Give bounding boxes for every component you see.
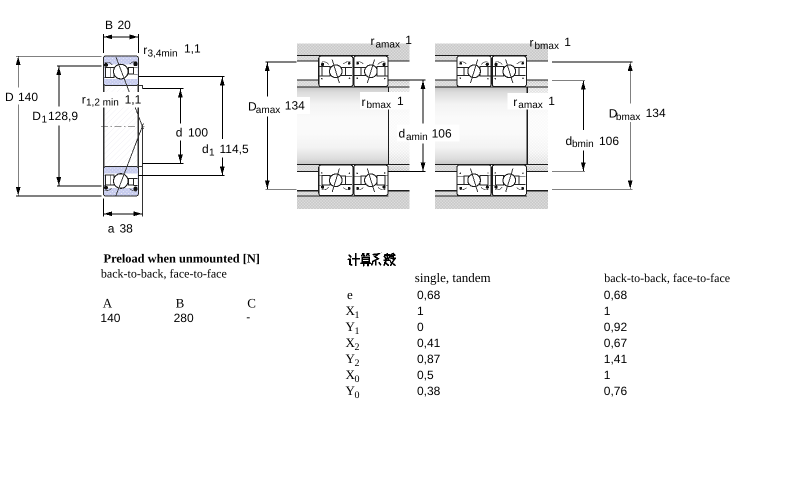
svg-text:140: 140 — [100, 311, 120, 325]
svg-text:134: 134 — [646, 106, 666, 120]
svg-text:20: 20 — [118, 18, 132, 32]
svg-text:1: 1 — [548, 94, 555, 108]
svg-text:140: 140 — [18, 90, 38, 104]
svg-text:d: d — [176, 126, 183, 140]
svg-text:amax: amax — [256, 105, 280, 116]
svg-text:2: 2 — [355, 342, 360, 353]
svg-text:1,2 min: 1,2 min — [86, 98, 119, 109]
svg-text:bmax: bmax — [616, 112, 640, 123]
svg-text:a: a — [108, 222, 115, 236]
svg-text:1,41: 1,41 — [604, 352, 628, 366]
svg-text:A: A — [103, 296, 113, 311]
svg-text:1: 1 — [417, 304, 424, 318]
svg-text:r: r — [513, 95, 517, 109]
svg-text:1: 1 — [355, 326, 360, 337]
svg-text:1: 1 — [42, 114, 48, 125]
svg-text:1: 1 — [355, 310, 360, 321]
svg-text:1,1: 1,1 — [125, 92, 142, 106]
svg-text:bmax: bmax — [535, 41, 559, 52]
svg-text:B: B — [105, 18, 113, 32]
svg-text:0,38: 0,38 — [417, 384, 441, 398]
svg-text:single, tandem: single, tandem — [415, 270, 491, 285]
svg-text:0,68: 0,68 — [417, 288, 441, 302]
svg-text:e: e — [347, 287, 353, 302]
svg-text:back-to-back, face-to-face: back-to-back, face-to-face — [604, 271, 730, 285]
svg-text:amin: amin — [406, 132, 428, 143]
svg-text:114,5: 114,5 — [220, 142, 249, 156]
svg-text:0,67: 0,67 — [604, 336, 628, 350]
svg-text:0,5: 0,5 — [417, 368, 434, 382]
svg-text:d: d — [399, 126, 406, 140]
svg-text:1: 1 — [604, 304, 611, 318]
svg-text:1: 1 — [564, 35, 571, 49]
svg-text:38: 38 — [120, 222, 134, 236]
svg-text:bmax: bmax — [367, 100, 391, 111]
svg-text:r: r — [362, 95, 366, 109]
svg-text:B: B — [176, 296, 185, 311]
svg-text:r: r — [530, 36, 534, 50]
svg-text:128,9: 128,9 — [48, 109, 78, 123]
svg-text:0,41: 0,41 — [417, 336, 441, 350]
svg-text:106: 106 — [432, 126, 452, 140]
svg-text:bmin: bmin — [572, 139, 594, 150]
svg-text:D: D — [5, 90, 14, 104]
svg-text:0,87: 0,87 — [417, 352, 441, 366]
svg-text:280: 280 — [174, 311, 194, 325]
svg-text:0: 0 — [417, 320, 424, 334]
svg-text:0: 0 — [355, 374, 360, 385]
svg-text:0,68: 0,68 — [604, 288, 628, 302]
svg-text:1: 1 — [397, 94, 404, 108]
svg-text:amax: amax — [376, 40, 400, 51]
svg-text:d: d — [202, 142, 209, 156]
svg-text:Preload when unmounted [N]: Preload when unmounted [N] — [104, 252, 260, 266]
svg-text:C: C — [247, 296, 256, 311]
svg-text:1: 1 — [405, 33, 412, 47]
svg-text:134: 134 — [285, 99, 305, 113]
svg-text:1: 1 — [604, 368, 611, 382]
svg-text:106: 106 — [599, 134, 619, 148]
svg-text:1: 1 — [209, 148, 215, 159]
svg-text:D: D — [32, 109, 41, 123]
svg-text:3,4min: 3,4min — [148, 49, 178, 60]
svg-text:back-to-back, face-to-face: back-to-back, face-to-face — [101, 266, 227, 280]
svg-text:0: 0 — [355, 390, 360, 401]
svg-text:amax: amax — [518, 100, 542, 111]
svg-text:0,92: 0,92 — [604, 320, 628, 334]
svg-text:100: 100 — [188, 126, 208, 140]
svg-text:-: - — [246, 310, 250, 324]
svg-text:0,76: 0,76 — [604, 384, 628, 398]
svg-text:2: 2 — [355, 358, 360, 369]
svg-text:1,1: 1,1 — [184, 42, 201, 56]
svg-text:r: r — [371, 34, 375, 48]
